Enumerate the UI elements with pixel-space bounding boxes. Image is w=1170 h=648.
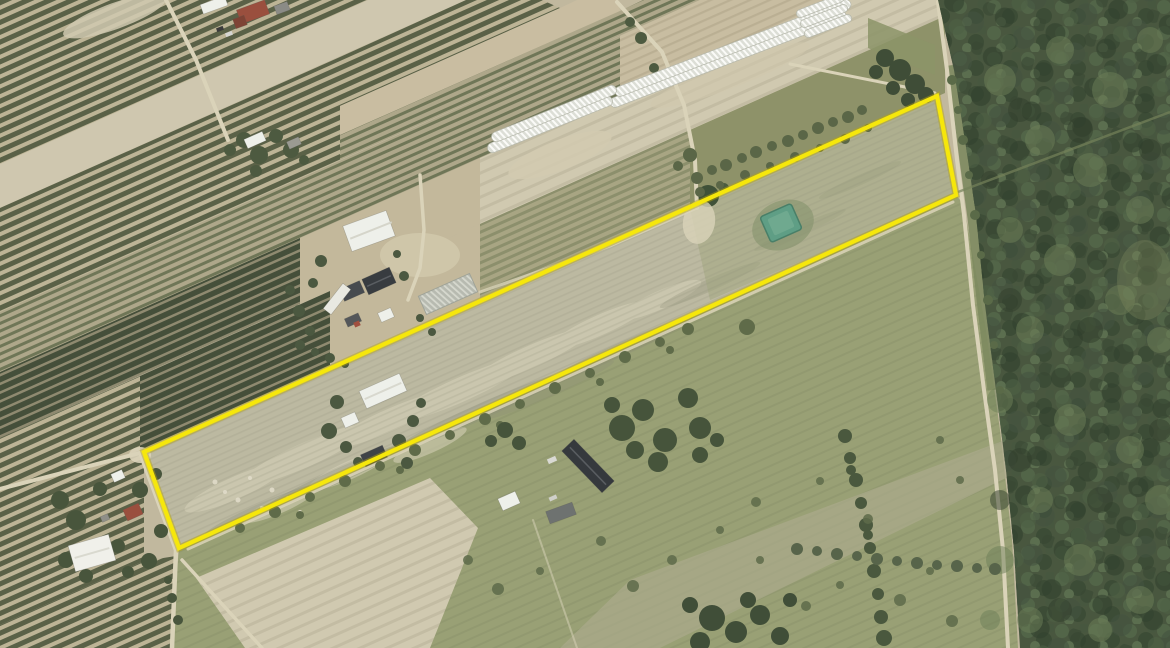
screenshot-root <box>0 0 1170 648</box>
aerial-orthophoto <box>0 0 1170 648</box>
